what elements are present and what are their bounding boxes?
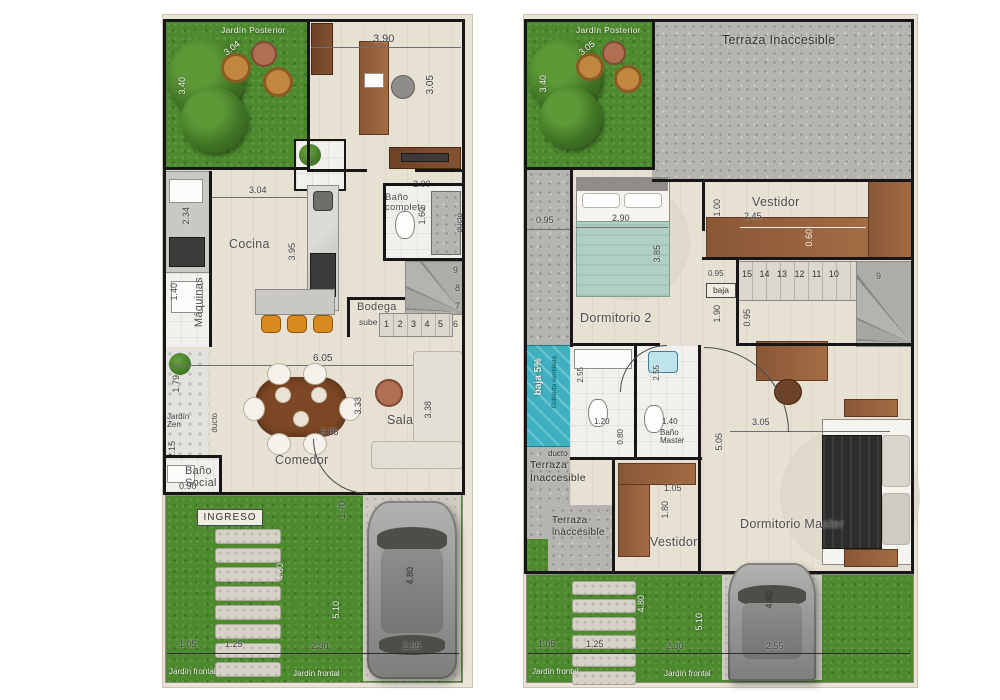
dim-230: 2.30: [666, 641, 684, 651]
wall: [347, 297, 405, 300]
dim-480-car: 4.80: [764, 591, 774, 609]
floorplan-canvas: { "colors": {"grass":"#4c8a2d","concrete…: [0, 0, 1000, 700]
wall: [652, 19, 655, 169]
wall: [307, 19, 310, 169]
dim-125: 1.25: [586, 639, 604, 649]
wall: [163, 455, 221, 458]
dim-230: 2.30: [311, 641, 329, 651]
path-stone: [215, 605, 281, 620]
path-stone: [215, 529, 281, 544]
wall: [163, 167, 310, 170]
dim-125: 1.25: [225, 639, 243, 649]
path-stone: [572, 653, 636, 667]
wall: [736, 257, 739, 345]
dim-480-garden: 4.80: [636, 595, 646, 613]
wall: [652, 179, 914, 182]
wall: [524, 167, 655, 170]
path-stone: [572, 617, 636, 631]
car-icon: [728, 563, 816, 681]
path-stone: [215, 567, 281, 582]
outer-wall: [524, 19, 914, 574]
floor-plan-ground: Jardín Posterior 3.04 3.40 3.90 3.05 Coc…: [162, 14, 473, 688]
wall: [570, 343, 660, 346]
path-stone: [572, 671, 636, 685]
wall: [612, 459, 615, 573]
dim-line: [167, 653, 459, 654]
wall: [347, 297, 350, 337]
wall: [415, 169, 465, 172]
car-roof: [381, 549, 443, 633]
dim-170: 1.70: [337, 501, 347, 519]
wall: [383, 183, 386, 261]
dim-105: 1.05: [179, 639, 197, 649]
path-stone: [572, 635, 636, 649]
wall: [307, 169, 367, 172]
front-garden-label: Jardín frontal: [532, 667, 579, 676]
front-garden-label: Jardín frontal: [664, 669, 711, 678]
path-stone: [215, 662, 281, 677]
path-stone: [215, 548, 281, 563]
wall: [570, 167, 573, 347]
front-garden-label: Jardín frontal: [293, 669, 340, 678]
dim-255: 2.55: [766, 641, 784, 651]
dim-105: 1.05: [538, 639, 556, 649]
floor-plan-upper: Jardín Posterior 3.05 3.40 Terraza Inacc…: [523, 14, 918, 688]
path-stone: [215, 586, 281, 601]
path-stone: [572, 599, 636, 613]
wall: [570, 457, 702, 460]
wall: [219, 455, 222, 495]
wall: [736, 343, 914, 346]
front-garden-label: Jardín frontal: [169, 667, 216, 676]
dim-255: 2.55: [403, 641, 421, 651]
path-stone: [215, 624, 281, 639]
dim-480-garden: 4.80: [275, 563, 285, 581]
wall: [383, 183, 465, 186]
dim-510: 5.10: [694, 613, 704, 631]
dim-510: 5.10: [331, 601, 341, 619]
wall: [702, 257, 914, 260]
wall: [702, 179, 705, 231]
wall: [383, 258, 465, 261]
path-stone: [572, 581, 636, 595]
wall: [209, 171, 212, 347]
dim-line: [528, 653, 910, 654]
dim-480-car: 4.80: [405, 567, 415, 585]
entry-label-box: INGRESO: [197, 509, 263, 526]
